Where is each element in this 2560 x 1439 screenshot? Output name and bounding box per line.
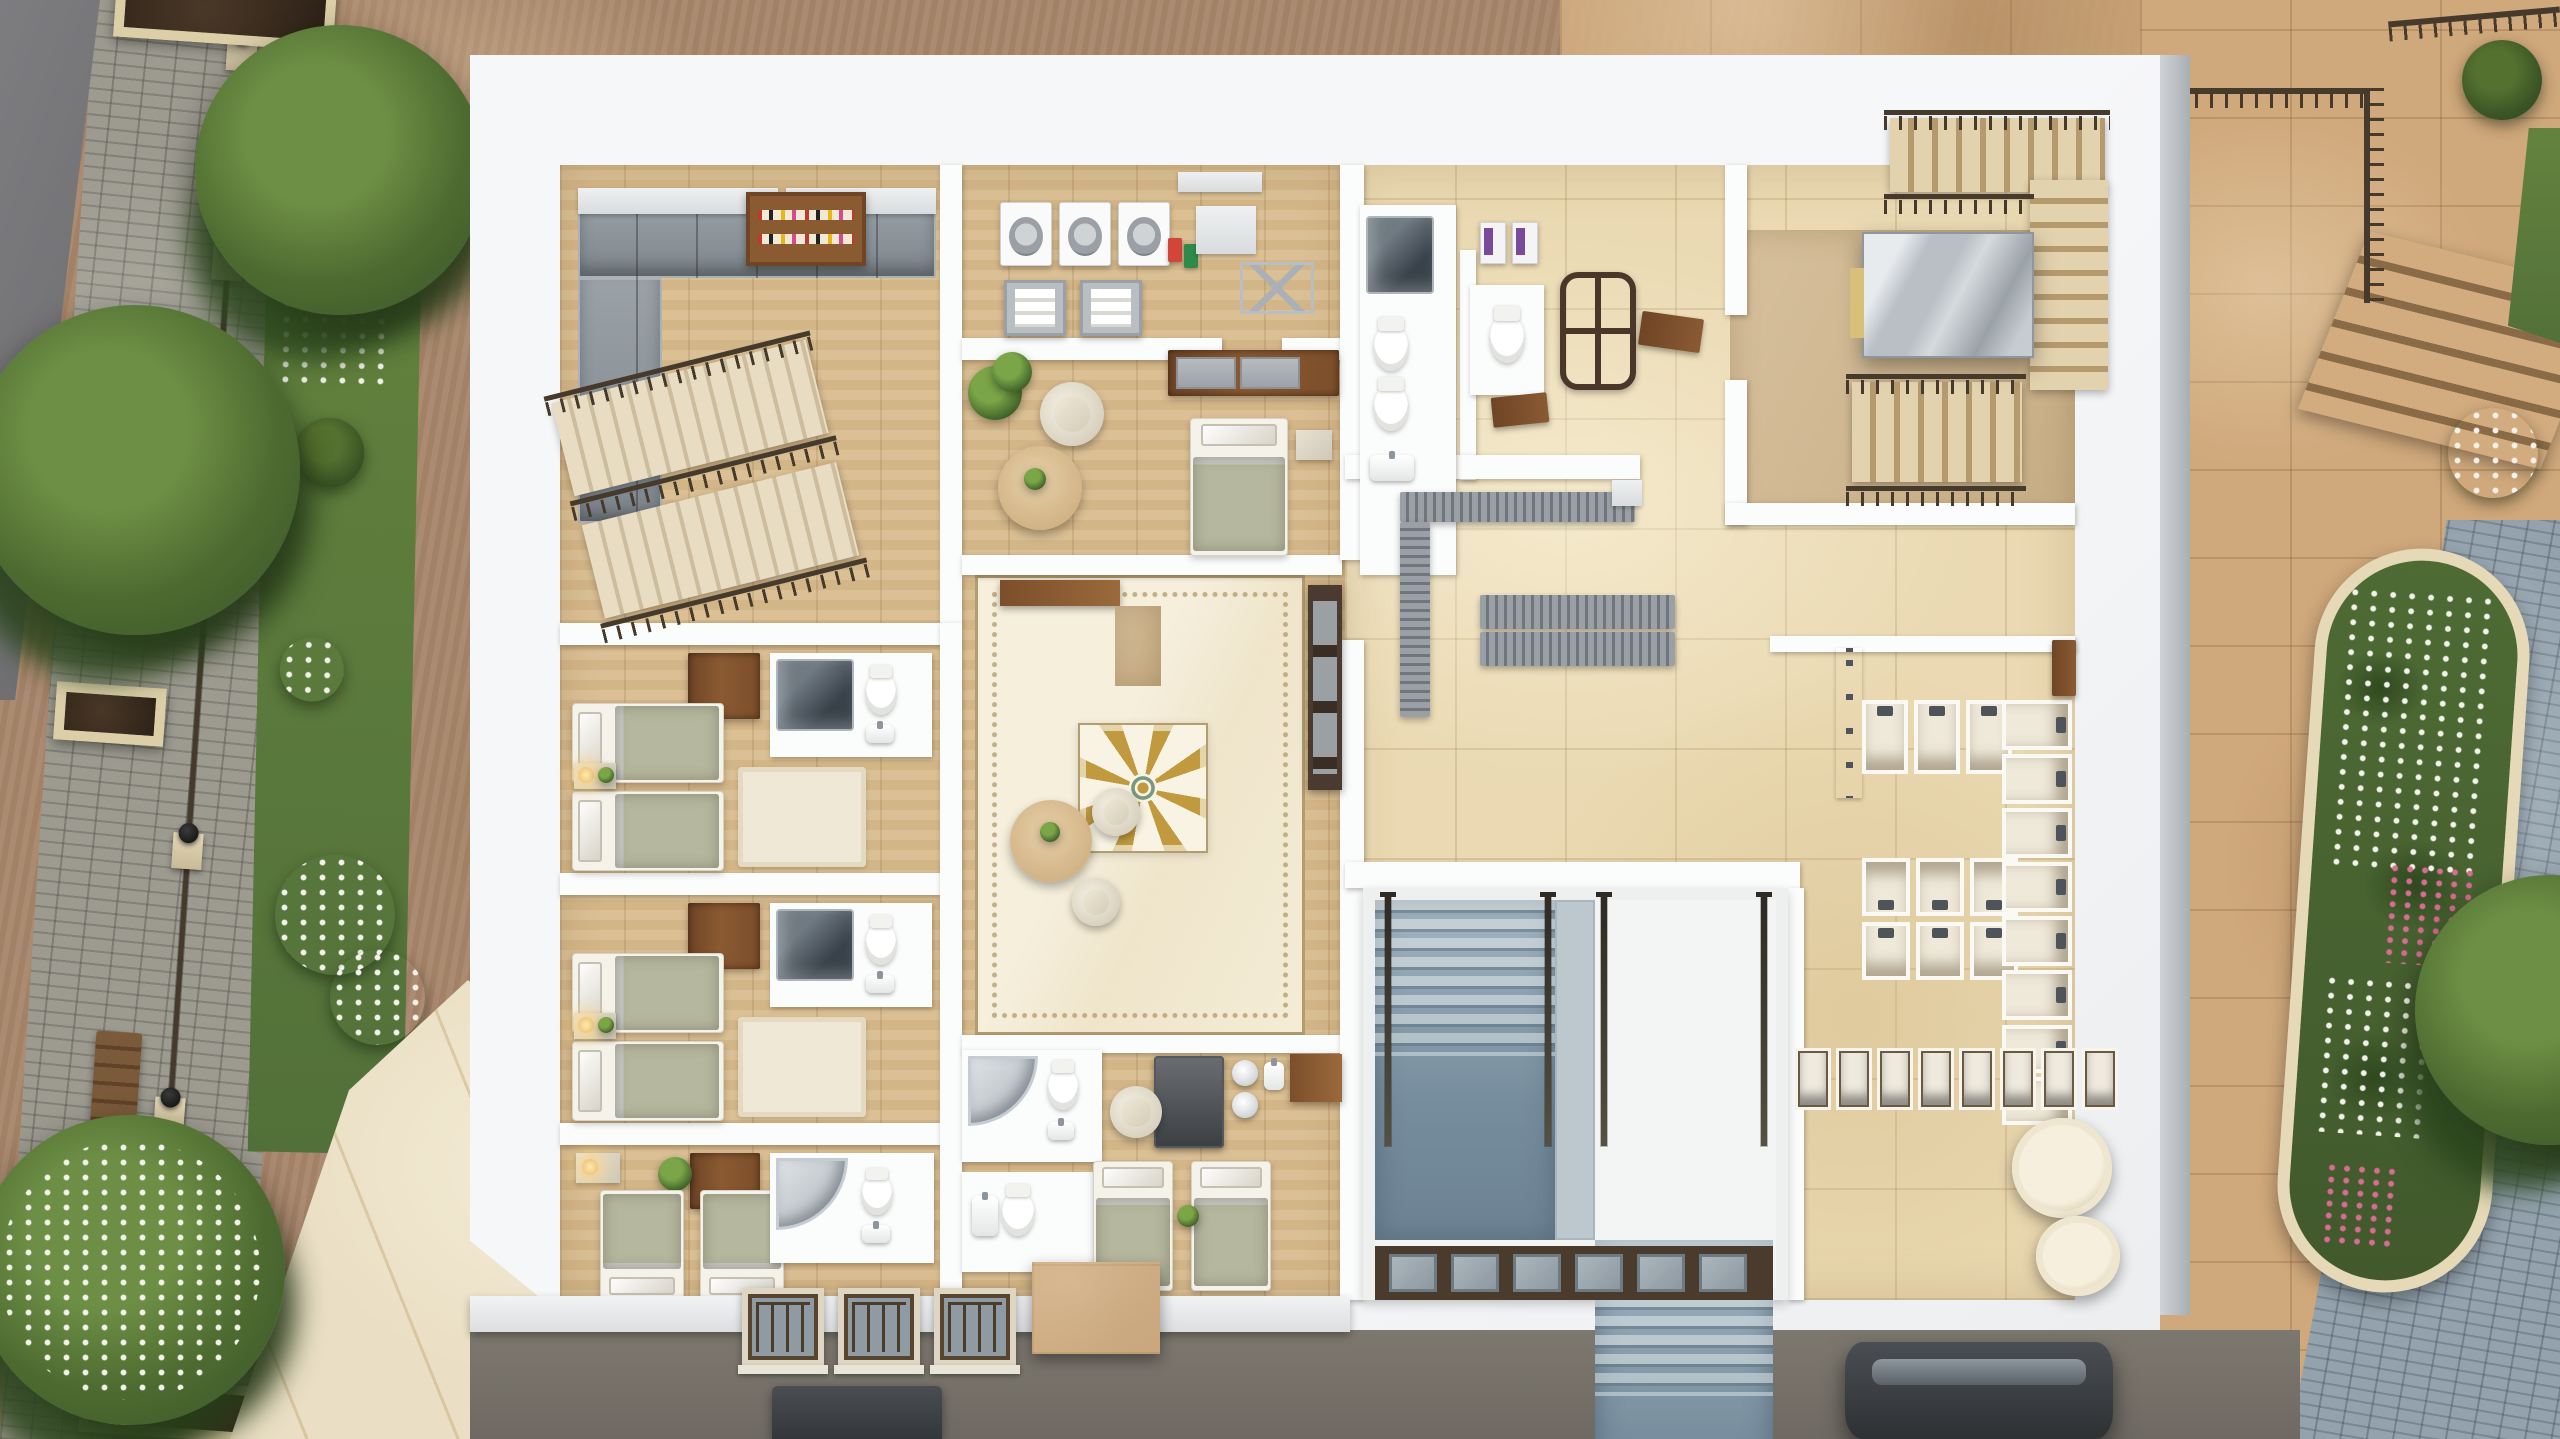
nightstand	[574, 1013, 616, 1039]
entry-awning	[772, 1386, 942, 1439]
vending-machine	[1480, 222, 1506, 264]
pink-flowers-patch	[2319, 1161, 2401, 1253]
floorplan-render-scene	[0, 0, 2560, 1439]
plunge-pools	[1363, 888, 1788, 1300]
twin-bedroom-1	[560, 645, 940, 873]
nightstand	[574, 763, 616, 789]
shower-stall	[1916, 858, 1964, 916]
turnstile	[1560, 272, 1636, 390]
slatted-bench	[1400, 522, 1430, 717]
wooden-bench	[2052, 640, 2076, 696]
cubby	[2041, 1048, 2077, 1110]
water-tank	[1232, 1060, 1258, 1086]
terrace-shrub	[2448, 408, 2538, 498]
pool-window-band	[1375, 1246, 1773, 1300]
corner-shower	[776, 1158, 848, 1230]
reception-desk	[1000, 580, 1120, 606]
facade-pillar	[1032, 1262, 1160, 1354]
rug	[738, 1017, 866, 1117]
toilet	[866, 673, 896, 715]
wall	[560, 1123, 940, 1145]
sink	[866, 725, 894, 743]
elevator-cab	[1862, 232, 2034, 358]
bed	[1190, 418, 1288, 556]
side-table	[1296, 430, 1332, 460]
elevator-door-trim	[1850, 268, 1864, 338]
detergent-bottle	[1168, 238, 1182, 262]
washing-machine	[1118, 202, 1170, 266]
stall-row-mid-back	[1862, 858, 2018, 916]
pool-ladder	[1545, 896, 1551, 1146]
elevator-zone	[1840, 100, 2130, 500]
arched-window	[838, 1288, 920, 1366]
bathroom-box	[770, 1153, 934, 1263]
ornate-window-row	[742, 1288, 1016, 1366]
facade-window	[1575, 1254, 1623, 1292]
shower-stall	[2002, 754, 2072, 804]
linen-cart-row	[1004, 280, 1142, 336]
washer-row	[1000, 202, 1170, 266]
bathroom-box	[770, 903, 932, 1007]
wall	[1345, 862, 1800, 888]
dispenser	[1264, 1062, 1284, 1090]
stair-flight-right	[2030, 180, 2108, 390]
slatted-bench	[1400, 492, 1635, 522]
nightstand-plant	[598, 1017, 614, 1033]
blossoms	[0, 1140, 260, 1400]
fence-pillar	[171, 832, 203, 870]
open-door	[1638, 311, 1704, 353]
display-shelf-row	[758, 234, 854, 244]
terrace-railing-top	[2180, 88, 2370, 94]
stall-column-right	[2002, 700, 2072, 1020]
lamp-icon	[578, 767, 594, 783]
twin-bedroom-3	[560, 1145, 940, 1300]
armchair	[1110, 1086, 1162, 1138]
locker-cabinet	[1308, 585, 1342, 790]
bed	[1191, 1161, 1271, 1291]
island-bench	[1480, 595, 1675, 629]
shrub	[294, 417, 365, 488]
sink	[1048, 1122, 1074, 1140]
shower-stall	[2002, 862, 2072, 912]
wall	[560, 873, 940, 895]
tree-planter	[53, 681, 167, 747]
locker-cubbies	[1795, 1048, 2118, 1110]
nightstand	[576, 1153, 620, 1183]
cubby	[1836, 1048, 1872, 1110]
armchair	[1040, 382, 1104, 446]
shower-stall	[2002, 970, 2072, 1020]
bed	[572, 791, 724, 871]
laundry-shelf	[1178, 172, 1262, 192]
soaking-tub	[2036, 1216, 2120, 1296]
arched-window	[742, 1288, 824, 1366]
wardrobe-door	[1240, 357, 1300, 389]
facade-window	[1699, 1254, 1747, 1292]
facade-window	[1637, 1254, 1685, 1292]
bathroom-box	[770, 653, 932, 757]
shower-stall	[2002, 808, 2072, 858]
white-flowers-patch	[2326, 584, 2499, 882]
vending-machine	[1512, 222, 1538, 264]
sink	[972, 1196, 998, 1236]
display-shelf-row	[758, 210, 854, 220]
pool-ladder	[1385, 896, 1391, 1146]
washing-machine	[1059, 202, 1111, 266]
bathroom-box	[962, 1172, 1102, 1272]
facade-window	[1513, 1254, 1561, 1292]
vending-row	[1480, 222, 1538, 264]
top-bedroom	[1162, 345, 1345, 560]
building-outer-face	[2160, 55, 2190, 1315]
toilet	[1002, 1192, 1034, 1236]
ablution-panel	[1836, 648, 1862, 798]
lobby-plant	[1040, 822, 1060, 842]
ornate-railing	[1846, 486, 2026, 491]
stall-row-mid-front	[1862, 922, 2018, 980]
toilet	[1490, 315, 1524, 363]
shower-stall	[1862, 700, 1908, 774]
toilet	[1048, 1068, 1078, 1110]
bed	[572, 1041, 724, 1121]
lantern-icon	[160, 1087, 181, 1108]
stall-row-top	[1862, 700, 2012, 774]
top-terrace-blend	[1560, 0, 2160, 58]
mosaic-medallion	[1078, 723, 1208, 853]
sink	[862, 1225, 890, 1243]
lobby-armchair	[1072, 878, 1120, 926]
shower-stall	[2002, 700, 2072, 750]
shower-stall	[2002, 916, 2072, 966]
main-staircase	[551, 340, 860, 625]
parked-car	[1845, 1342, 2113, 1439]
washing-machine	[1000, 202, 1052, 266]
shower-stall	[1914, 700, 1960, 774]
shower-cabin	[776, 909, 854, 981]
utility-counter	[1290, 1054, 1342, 1102]
linen-cart	[1004, 280, 1066, 336]
facade-window	[1451, 1254, 1499, 1292]
cubby	[2082, 1048, 2118, 1110]
pool-divider-walkway	[1555, 900, 1595, 1240]
wall	[940, 623, 962, 1300]
ornate-railing	[1884, 110, 2110, 115]
cubby	[1795, 1048, 1831, 1110]
wardrobe	[1168, 350, 1339, 396]
flowering-shrub	[330, 950, 425, 1045]
plant	[658, 1157, 692, 1191]
linen-cart	[1080, 280, 1142, 336]
flowering-shrub	[279, 637, 344, 702]
arched-window	[934, 1288, 1016, 1366]
cubby	[2000, 1048, 2036, 1110]
plant	[1177, 1205, 1199, 1227]
toilet	[862, 1175, 892, 1215]
utility-room	[1150, 1048, 1345, 1156]
reception-desk-front	[1115, 606, 1161, 686]
drying-rack	[1240, 262, 1314, 314]
terrace-railing-side	[2364, 88, 2370, 303]
shower-cabin	[776, 659, 854, 731]
boiler-pumps	[1154, 1056, 1224, 1148]
potted-plant	[992, 352, 1032, 392]
pool-basin-left	[1375, 900, 1555, 1240]
cubby	[1959, 1048, 1995, 1110]
bed	[600, 1190, 684, 1300]
lamp-icon	[582, 1159, 598, 1175]
pool-windows	[1389, 1254, 1747, 1292]
toilet	[866, 923, 896, 965]
water-tank	[1232, 1092, 1258, 1118]
twin-bedroom-2	[560, 895, 940, 1123]
cubby	[1877, 1048, 1913, 1110]
wardrobe-door	[1176, 357, 1236, 389]
facade-window	[1389, 1254, 1437, 1292]
pool-ladder	[1601, 896, 1607, 1146]
lamp-icon	[578, 1017, 594, 1033]
retail-display-shelf	[746, 192, 866, 266]
entrance-vestibule	[1380, 165, 1720, 465]
corner-shower	[968, 1056, 1038, 1126]
stair-flight-bottom	[1852, 382, 2022, 482]
stool	[1612, 480, 1642, 506]
rug	[738, 767, 866, 867]
open-door	[1491, 392, 1550, 428]
laundry-room	[962, 165, 1345, 340]
pool-ladder	[1761, 896, 1767, 1146]
bathroom-box	[962, 1050, 1102, 1162]
wall	[1725, 165, 1747, 315]
lantern-icon	[178, 822, 199, 843]
lounge	[962, 360, 1162, 560]
street-tree	[195, 25, 485, 315]
soaking-tub	[2012, 1118, 2112, 1218]
sink	[866, 975, 894, 993]
island-bench	[1480, 632, 1675, 666]
ornate-railing	[1846, 374, 2026, 379]
shower-stall	[1916, 922, 1964, 980]
shower-stall	[1862, 922, 1910, 980]
lobby-armchair	[1092, 788, 1140, 836]
table-plant	[1024, 468, 1046, 490]
folding-table	[1196, 206, 1256, 254]
shower-stall	[1862, 858, 1910, 916]
ornate-railing	[1884, 194, 2034, 199]
cubby	[1918, 1048, 1954, 1110]
changing-area	[1395, 480, 1715, 710]
wall	[1725, 503, 2075, 525]
corner-plant	[2462, 40, 2542, 120]
wc-stall	[1470, 285, 1544, 395]
nightstand-plant	[598, 767, 614, 783]
